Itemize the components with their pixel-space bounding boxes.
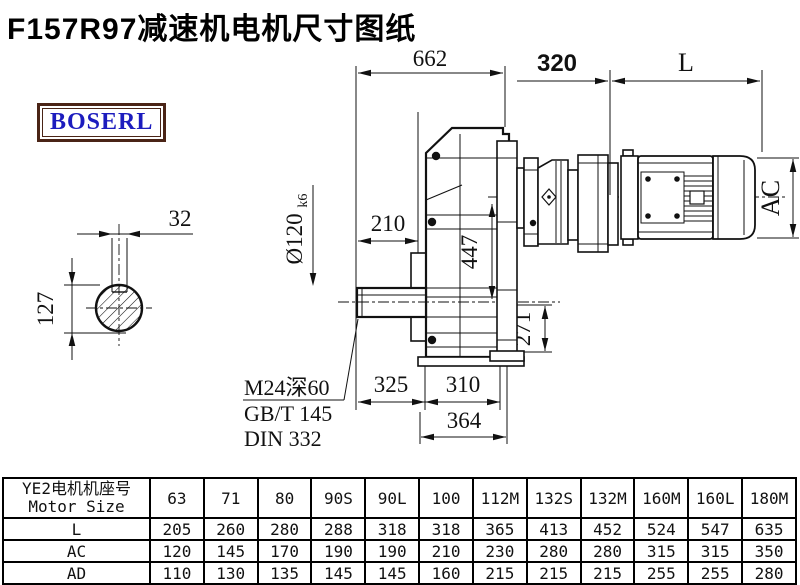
table-cell: 318 xyxy=(365,518,419,540)
dim-shaft-diameter-label: Ø120 xyxy=(282,213,307,264)
table-cell: 280 xyxy=(527,540,581,562)
table-cell: 215 xyxy=(473,562,527,584)
tap-standard-din-label: DIN 332 xyxy=(244,426,322,451)
dim-shaft-section-height-label: 127 xyxy=(33,292,58,327)
dim-housing-height-label: 447 xyxy=(457,235,482,270)
motor-size-col-header: 63 xyxy=(150,478,204,518)
shaft-section-view: 32 127 xyxy=(33,206,193,360)
tap-hole-note: M24深60 GB/T 145 DIN 332 xyxy=(243,319,358,451)
svg-text:Ø120 k6: Ø120 k6 xyxy=(282,194,311,265)
motor-size-col-header: 160L xyxy=(688,478,742,518)
table-cell: 280 xyxy=(258,518,312,540)
bolt-hole xyxy=(428,336,436,344)
table-cell: 160 xyxy=(419,562,473,584)
dim-motor-height: AC xyxy=(756,158,799,238)
dim-base-width-label: 364 xyxy=(447,408,482,433)
dim-overall-width-label: 662 xyxy=(413,46,448,71)
table-cell: 205 xyxy=(150,518,204,540)
row-label: AD xyxy=(3,562,150,584)
dim-adapter-length: 320 xyxy=(517,50,608,84)
table-cell: 210 xyxy=(419,540,473,562)
table-cell: 280 xyxy=(581,540,635,562)
motor-size-col-header: 71 xyxy=(204,478,258,518)
tap-hole-label: M24深60 xyxy=(244,375,330,400)
table-cell: 413 xyxy=(527,518,581,540)
table-cell: 288 xyxy=(311,518,365,540)
dim-motor-length: L xyxy=(612,48,760,84)
table-cell: 145 xyxy=(204,540,258,562)
table-row: AD110130135145145160215215215255255280 xyxy=(3,562,796,584)
dim-foot-right-label: 310 xyxy=(446,372,481,397)
dim-motor-height-label: AC xyxy=(756,180,785,216)
table-cell: 135 xyxy=(258,562,312,584)
motor-flange xyxy=(621,156,638,239)
dim-foot-left-label: 325 xyxy=(374,372,409,397)
motor-size-table: YE2电机机座号 Motor Size 63718090S90L100112M1… xyxy=(2,477,797,585)
brand-logo-text: BOSERL xyxy=(42,108,161,137)
table-cell: 145 xyxy=(365,562,419,584)
table-cell: 145 xyxy=(311,562,365,584)
table-cell: 130 xyxy=(204,562,258,584)
table-header-row: YE2电机机座号 Motor Size 63718090S90L100112M1… xyxy=(3,478,796,518)
dimension-drawing: 32 127 xyxy=(0,0,800,477)
bolt-hole xyxy=(432,152,440,160)
row-label: AC xyxy=(3,540,150,562)
dim-motor-length-label: L xyxy=(678,48,694,77)
output-shaft xyxy=(357,288,426,317)
table-cell: 255 xyxy=(688,562,742,584)
table-cell: 190 xyxy=(365,540,419,562)
motor-size-col-header: 132M xyxy=(581,478,635,518)
motor-size-col-header: 90S xyxy=(311,478,365,518)
motor-size-header-en: Motor Size xyxy=(4,498,149,516)
motor xyxy=(621,150,755,245)
bolt-hole xyxy=(428,218,436,226)
motor-size-col-header: 112M xyxy=(473,478,527,518)
motor-size-table-body: YE2电机机座号 Motor Size 63718090S90L100112M1… xyxy=(3,478,796,584)
table-cell: 452 xyxy=(581,518,635,540)
motor-size-col-header: 100 xyxy=(419,478,473,518)
motor-size-col-header: 132S xyxy=(527,478,581,518)
table-cell: 318 xyxy=(419,518,473,540)
table-cell: 280 xyxy=(742,562,796,584)
row-label: L xyxy=(3,518,150,540)
dim-bottom-group: 325 310 364 xyxy=(358,366,507,444)
page-title: F157R97减速机电机尺寸图纸 xyxy=(7,4,416,48)
table-cell: 350 xyxy=(742,540,796,562)
brand-logo: BOSERL xyxy=(37,103,166,142)
table-cell: 260 xyxy=(204,518,258,540)
table-cell: 315 xyxy=(688,540,742,562)
dim-bore-to-face: 210 xyxy=(358,211,418,244)
motor-size-col-header: 180M xyxy=(742,478,796,518)
tap-standard-gb-label: GB/T 145 xyxy=(244,401,332,426)
motor-size-col-header: 160M xyxy=(634,478,688,518)
table-cell: 365 xyxy=(473,518,527,540)
table-cell: 110 xyxy=(150,562,204,584)
dim-key-width: 32 xyxy=(77,206,193,237)
dim-bore-to-face-label: 210 xyxy=(371,211,406,236)
table-cell: 215 xyxy=(527,562,581,584)
motor-size-col-header: 80 xyxy=(258,478,312,518)
dim-adapter-length-label: 320 xyxy=(537,50,577,77)
table-cell: 635 xyxy=(742,518,796,540)
table-cell: 120 xyxy=(150,540,204,562)
fan-cowl xyxy=(713,156,755,239)
motor-size-header-cell: YE2电机机座号 Motor Size xyxy=(3,478,150,518)
table-cell: 215 xyxy=(581,562,635,584)
table-cell: 547 xyxy=(688,518,742,540)
table-row: AC120145170190190210230280280315315350 xyxy=(3,540,796,562)
dim-shaft-diameter: Ø120 k6 xyxy=(282,185,316,286)
table-cell: 524 xyxy=(634,518,688,540)
table-cell: 230 xyxy=(473,540,527,562)
table-cell: 315 xyxy=(634,540,688,562)
input-adapter xyxy=(517,155,618,252)
dim-key-width-label: 32 xyxy=(169,206,192,231)
table-row: L205260280288318318365413452524547635 xyxy=(3,518,796,540)
table-cell: 255 xyxy=(634,562,688,584)
dim-shaft-diameter-tolerance: k6 xyxy=(296,194,311,208)
motor-size-header-cn: YE2电机机座号 xyxy=(4,480,149,498)
motor-size-col-header: 90L xyxy=(365,478,419,518)
table-cell: 190 xyxy=(311,540,365,562)
dim-overall-width: 662 xyxy=(358,46,503,76)
table-cell: 170 xyxy=(258,540,312,562)
